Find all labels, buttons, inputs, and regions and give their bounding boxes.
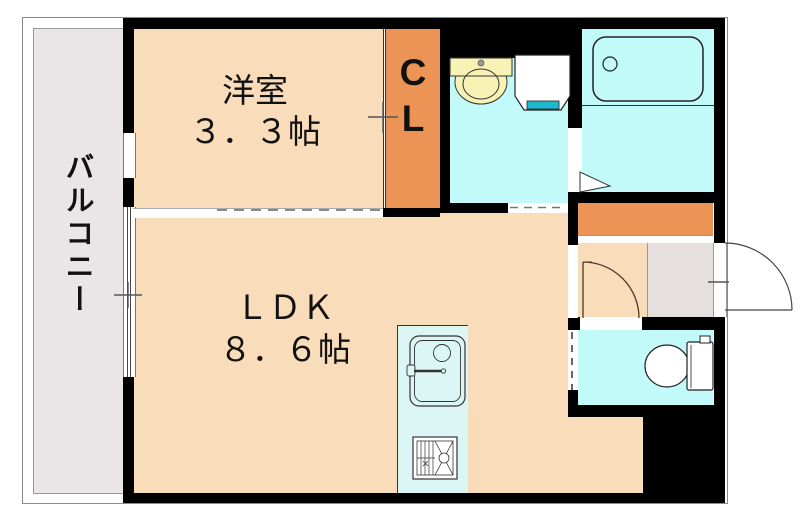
ldk-name: ＬＤＫ: [160, 287, 410, 329]
western-room-label: 洋室 ３．３帖: [130, 70, 380, 152]
interior-door-swing-icon: [583, 262, 639, 318]
kitchen-sink-icon: [407, 336, 465, 406]
washing-machine-pan-icon: [515, 55, 570, 110]
ldk-label: ＬＤＫ ８．６帖: [160, 287, 410, 371]
gas-stove-icon: [413, 437, 457, 479]
bathroom-door-triangle-icon: [580, 172, 610, 192]
floor-plan: バルコニー 洋室 ３．３帖 ＬＤＫ ８．６帖 C L: [0, 0, 800, 525]
closet-label: C L: [386, 50, 440, 142]
toilet-icon: [645, 336, 713, 390]
closet-label-l: L: [386, 96, 440, 142]
entrance-door-swing-icon: [725, 243, 792, 310]
ldk-size: ８．６帖: [160, 329, 410, 371]
western-room-size: ３．３帖: [130, 111, 380, 152]
western-room-name: 洋室: [130, 70, 380, 111]
balcony-label: バルコニー: [58, 152, 98, 382]
bathtub-icon: [582, 37, 714, 106]
closet-label-c: C: [386, 50, 440, 96]
wash-basin-icon: [450, 58, 512, 104]
